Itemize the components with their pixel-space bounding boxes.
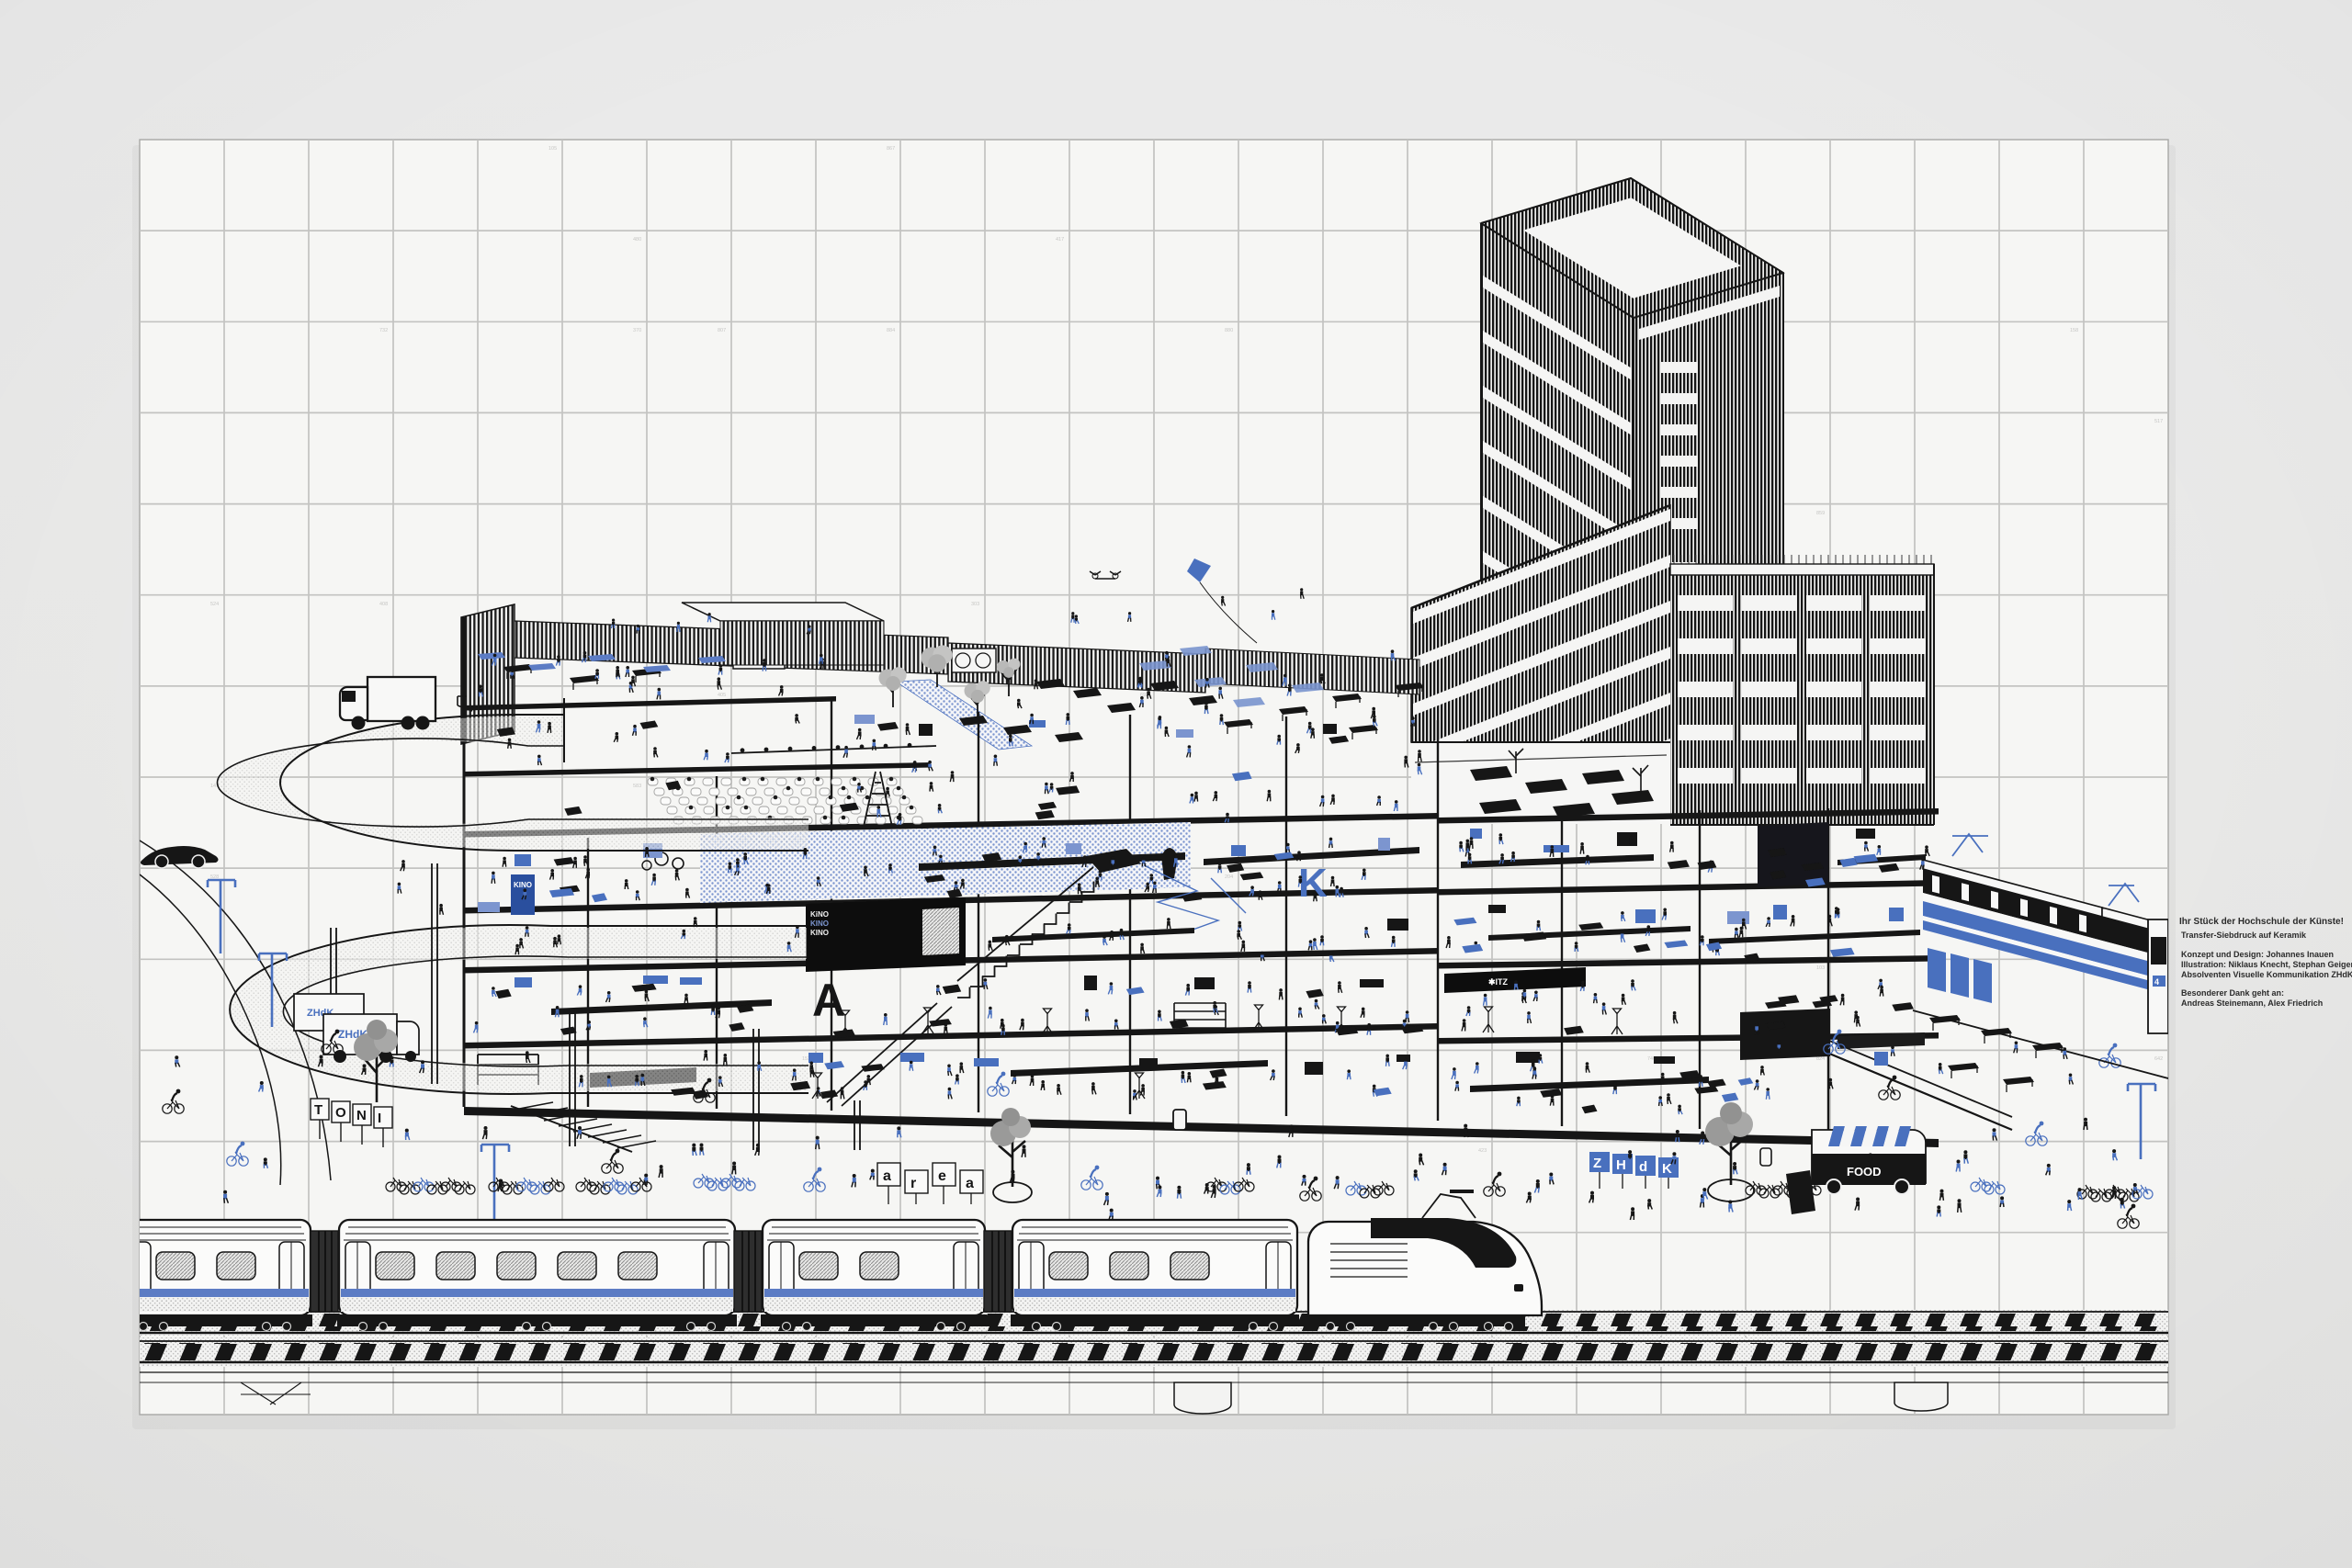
svg-text:Absolventen Visuelle Kommunika: Absolventen Visuelle Kommunikation ZHdK xyxy=(2181,970,2352,979)
svg-text:732: 732 xyxy=(379,328,388,333)
svg-text:105: 105 xyxy=(548,146,557,152)
svg-text:FOOD: FOOD xyxy=(1847,1165,1882,1179)
svg-text:Ihr Stück der Hochschule der K: Ihr Stück der Hochschule der Künste! xyxy=(2179,917,2344,927)
svg-text:405: 405 xyxy=(718,693,726,698)
svg-text:417: 417 xyxy=(1056,237,1064,243)
svg-text:880: 880 xyxy=(1225,328,1233,333)
svg-text:I: I xyxy=(378,1111,381,1126)
svg-text:867: 867 xyxy=(887,146,895,152)
svg-text:KiNO: KiNO xyxy=(810,910,829,919)
svg-text:524: 524 xyxy=(210,602,219,607)
svg-text:859: 859 xyxy=(1816,511,1825,516)
svg-text:d: d xyxy=(1639,1159,1647,1175)
svg-text:Konzept und Design: Johannes I: Konzept und Design: Johannes Inauen xyxy=(2181,950,2334,959)
svg-text:4: 4 xyxy=(2154,977,2159,987)
svg-text:583: 583 xyxy=(633,784,641,789)
svg-text:807: 807 xyxy=(718,328,726,333)
svg-text:a: a xyxy=(966,1176,974,1191)
svg-text:303: 303 xyxy=(971,602,979,607)
svg-text:✱ITZ: ✱ITZ xyxy=(1488,977,1509,987)
svg-text:KINO: KINO xyxy=(810,919,829,928)
svg-text:824: 824 xyxy=(1816,1056,1825,1062)
svg-text:480: 480 xyxy=(633,237,641,243)
svg-text:884: 884 xyxy=(887,328,895,333)
svg-text:370: 370 xyxy=(633,328,641,333)
svg-text:Illustration: Niklaus Knecht,: Illustration: Niklaus Knecht, Stephan Ge… xyxy=(2181,960,2352,969)
svg-text:642: 642 xyxy=(2154,1056,2163,1062)
svg-text:A: A xyxy=(812,975,845,1026)
svg-text:KINO: KINO xyxy=(810,929,829,937)
svg-text:Z: Z xyxy=(1593,1156,1601,1171)
svg-text:103: 103 xyxy=(1816,965,1825,971)
svg-text:T: T xyxy=(314,1102,322,1118)
svg-text:Transfer-Siebdruck auf Keramik: Transfer-Siebdruck auf Keramik xyxy=(2181,931,2307,940)
svg-text:408: 408 xyxy=(379,602,388,607)
svg-text:158: 158 xyxy=(2070,328,2078,333)
svg-text:Andreas Steinemann, Alex Fried: Andreas Steinemann, Alex Friedrich xyxy=(2181,998,2323,1008)
svg-text:O: O xyxy=(335,1105,346,1121)
svg-text:H: H xyxy=(1616,1157,1626,1173)
svg-text:K: K xyxy=(1298,861,1328,906)
svg-text:517: 517 xyxy=(2154,419,2163,424)
svg-text:204: 204 xyxy=(1225,874,1233,880)
svg-text:r: r xyxy=(910,1176,916,1191)
svg-text:N: N xyxy=(356,1108,367,1123)
svg-text:Besonderer Dank geht an:: Besonderer Dank geht an: xyxy=(2181,988,2284,998)
svg-text:KINO: KINO xyxy=(514,881,532,889)
svg-text:a: a xyxy=(883,1168,891,1184)
svg-text:K: K xyxy=(1662,1161,1672,1177)
svg-text:423: 423 xyxy=(1478,1148,1487,1154)
svg-text:e: e xyxy=(938,1168,946,1184)
